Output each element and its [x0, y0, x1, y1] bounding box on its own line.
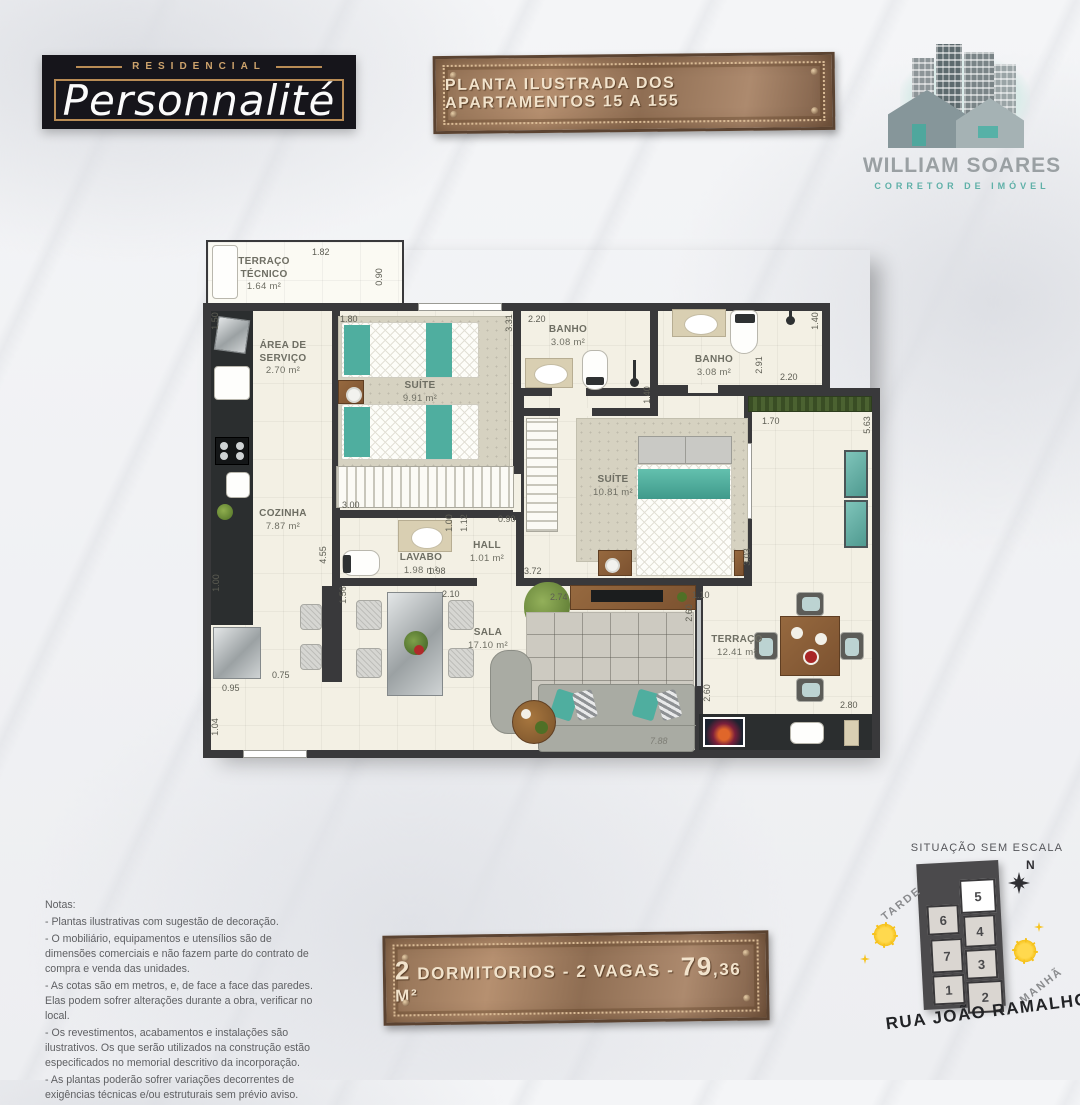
terrace-chair: [796, 592, 824, 616]
single-bed: [341, 322, 479, 378]
glass-panel: [844, 500, 868, 548]
dim-label: 2.20: [780, 372, 798, 382]
washing-machine: [214, 366, 250, 400]
plaque-screw: [402, 999, 409, 1006]
burner: [236, 452, 244, 460]
kitchen-sink: [226, 472, 250, 498]
plant-icon: [677, 592, 687, 602]
gold-line-right: [276, 66, 322, 68]
sink-basin: [684, 314, 718, 335]
wall-segment: [203, 303, 211, 758]
table-bowl: [521, 709, 531, 719]
bed-pillow: [344, 407, 370, 457]
dim-label: 2.60: [702, 684, 712, 702]
sparkle-icon: [1034, 922, 1044, 932]
planter-hedge: [748, 396, 872, 412]
unit-1: 1: [932, 974, 966, 1006]
brand-name: WILLIAM SOARES: [856, 154, 1068, 178]
brand-tagline: CORRETOR DE IMÓVEL: [856, 181, 1068, 191]
wall-segment: [332, 578, 477, 586]
tarde-label: TARDE: [879, 885, 923, 923]
room-label: SUÍTE10.81 m²: [582, 474, 644, 498]
dim-label: 1.50: [210, 312, 220, 330]
dim-label: 1.10: [692, 590, 710, 600]
toilet: [342, 550, 380, 576]
bed-blanket: [638, 469, 730, 499]
toilet: [582, 350, 608, 390]
wall-segment: [332, 510, 521, 518]
house-door: [912, 124, 926, 146]
dim-label: 1.12: [459, 514, 469, 532]
note-line: - As cotas são em metros, e, de face a f…: [45, 979, 317, 1024]
dining-chair: [448, 648, 474, 678]
bathroom-counter: [672, 309, 726, 337]
room-label: SALA17.10 m²: [458, 627, 518, 651]
unit-7: 7: [930, 938, 964, 974]
bathroom-counter: [525, 358, 573, 388]
bar-stool: [300, 644, 322, 670]
double-bed: [636, 464, 732, 576]
plaque-screw: [450, 72, 457, 79]
room-label: COZINHA7.87 m²: [252, 508, 314, 532]
dim-label: 1.56: [338, 586, 348, 604]
bed-pillow: [344, 325, 370, 375]
note-line: - As plantas poderão sofrer variações de…: [45, 1073, 317, 1103]
dim-label: 1.98: [428, 566, 446, 576]
dining-chair: [356, 648, 382, 678]
door-opening: [560, 408, 592, 416]
dim-label: 1.00: [444, 514, 454, 532]
note-line: - Os revestimentos, acabamentos e instal…: [45, 1026, 317, 1071]
room-label: HALL1.01 m²: [462, 540, 512, 564]
wardrobe: [526, 418, 558, 532]
room-label: BANHO3.08 m²: [538, 324, 598, 348]
william-soares-logo-mark: [882, 42, 1042, 150]
unit-5: 5: [959, 878, 997, 914]
burner: [220, 452, 228, 460]
unit-6: 6: [926, 904, 960, 936]
summary-plaque: 2 DORMITORIOS - 2 VAGAS - 79,36 M²: [382, 930, 769, 1025]
north-label: N: [1026, 858, 1035, 872]
refrigerator: [213, 627, 261, 679]
wardrobe: [336, 466, 514, 508]
wall-segment: [744, 388, 880, 396]
tv-sideboard: [570, 585, 696, 610]
room-label: ÁREA DE SERVIÇO2.70 m²: [253, 340, 313, 377]
room-label: BANHO3.08 m²: [684, 354, 744, 378]
lamp-icon: [605, 558, 620, 573]
burner: [236, 442, 244, 450]
room-label: SUÍTE9.91 m²: [390, 380, 450, 404]
dim-label: 1.04: [210, 718, 220, 736]
barbecue-fire-window: [703, 717, 745, 747]
unit-4: 4: [963, 914, 997, 948]
dining-chair: [356, 600, 382, 630]
bed-runner: [426, 405, 452, 459]
lamp-icon: [346, 387, 362, 403]
summary-plaque-inner: 2 DORMITORIOS - 2 VAGAS - 79,36 M²: [393, 939, 760, 1016]
table-plant: [535, 721, 548, 734]
plaque-screw: [743, 950, 750, 957]
dim-label: 2.74: [550, 592, 568, 602]
sun-icon: [872, 922, 898, 948]
top-plaque-text: PLANTA ILUSTRADA DOS APARTAMENTOS 15 A 1…: [445, 73, 823, 113]
dim-label: 1.70: [762, 416, 780, 426]
headboard: [638, 436, 732, 464]
chair-seat: [802, 597, 820, 611]
dining-chair: [448, 600, 474, 630]
plate: [815, 633, 827, 645]
dim-label: 1.40: [810, 312, 820, 330]
logo-personnalite-text: Personnalité: [42, 79, 356, 121]
dim-label: 4.55: [318, 546, 328, 564]
summary-text: 2 DORMITORIOS - 2 VAGAS - 79,36 M²: [395, 950, 758, 1006]
wall-segment: [332, 510, 340, 586]
sparkle-icon: [860, 954, 870, 964]
dim-label: 1.40: [642, 386, 652, 404]
bed-runner: [426, 323, 452, 377]
note-line: - O mobiliário, equipamentos e utensílio…: [45, 932, 317, 977]
dim-label: 0.90: [498, 514, 516, 524]
room-label: TERRAÇO TÉCNICO1.64 m²: [225, 256, 303, 293]
dining-table: [387, 592, 443, 696]
logo-residencial-row: RESIDENCIAL: [42, 61, 356, 72]
nightstand: [598, 550, 632, 576]
glass-panel: [844, 450, 868, 498]
william-soares-logo: WILLIAM SOARES CORRETOR DE IMÓVEL: [856, 42, 1068, 191]
bowl: [803, 649, 819, 665]
toilet: [730, 310, 758, 354]
door-opening: [688, 385, 718, 393]
terrace-chair: [840, 632, 864, 660]
notes-title: Notas:: [45, 898, 317, 913]
terrace-table: [780, 616, 840, 676]
bar-stool: [300, 604, 322, 630]
window: [243, 750, 307, 758]
coffee-table: [512, 700, 556, 744]
chair-seat: [845, 638, 859, 656]
plaque-screw: [450, 111, 457, 118]
dim-label: 1.80: [340, 314, 358, 324]
door-opening: [552, 388, 586, 396]
throw-pillow: [656, 689, 683, 721]
plant-icon: [217, 504, 233, 520]
toilet-tank: [343, 555, 351, 573]
sofa: [538, 684, 695, 752]
sliding-glass-door: [697, 600, 701, 686]
tv: [591, 590, 663, 602]
stove: [215, 437, 249, 465]
wall-segment: [872, 388, 880, 758]
unit-3: 3: [965, 948, 999, 980]
room-label: TERRAÇO12.41 m²: [706, 634, 768, 658]
dim-label: 7.88: [650, 736, 668, 746]
notes-block: Notas: - Plantas ilustrativas com sugest…: [45, 898, 317, 1105]
single-bed: [341, 404, 479, 460]
grill-sink: [790, 722, 824, 744]
note-line: - Plantas ilustrativas com sugestão de d…: [45, 915, 317, 930]
dim-label: 1.00: [211, 574, 221, 592]
terrace-chair: [796, 678, 824, 702]
dim-label: 1.82: [312, 247, 330, 257]
plaque-screw: [743, 995, 750, 1002]
gold-line-left: [76, 66, 122, 68]
logo-residencial-text: RESIDENCIAL: [132, 61, 266, 72]
centerpiece-flowers: [414, 645, 424, 655]
dim-label: 0.75: [272, 670, 290, 680]
dim-label: 3.03: [742, 548, 752, 566]
sink-basin: [534, 364, 568, 385]
plaque-screw: [811, 107, 818, 114]
dim-label: 2.60: [684, 604, 694, 622]
plate: [791, 627, 803, 639]
cutting-board: [844, 720, 859, 746]
top-plaque-inner: PLANTA ILUSTRADA DOS APARTAMENTOS 15 A 1…: [443, 61, 826, 125]
nightstand: [338, 380, 364, 404]
door-opening: [513, 474, 521, 512]
dim-label: 2.91: [754, 356, 764, 374]
dim-label: 2.10: [442, 589, 460, 599]
throw-pillow: [572, 689, 598, 721]
situation-plot: 6 5 4 3 7 1 2: [916, 860, 1006, 1010]
chair-seat: [802, 683, 820, 697]
dim-label: 3.72: [524, 566, 542, 576]
plaque-screw: [811, 68, 818, 75]
burner: [220, 442, 228, 450]
situation-title: SITUAÇÃO SEM ESCALA: [892, 842, 1080, 854]
dim-label: 0.90: [374, 268, 384, 286]
residencial-personnalite-logo: RESIDENCIAL Personnalité: [42, 55, 356, 129]
top-title-plaque: PLANTA ILUSTRADA DOS APARTAMENTOS 15 A 1…: [433, 52, 836, 134]
dim-label: 3.31: [504, 314, 514, 332]
toilet-tank: [735, 314, 755, 323]
sink-basin: [411, 527, 443, 549]
plaque-screw: [402, 954, 409, 961]
window: [418, 303, 502, 311]
sofa-seam: [539, 725, 696, 726]
shower-arm: [789, 311, 792, 323]
dim-label: 3.00: [342, 500, 360, 510]
dim-label: 0.95: [222, 683, 240, 693]
headboard-divider: [685, 437, 686, 463]
dim-label: 5.63: [862, 416, 872, 434]
toilet-lid: [586, 377, 604, 385]
flyer-canvas: { "logo": { "top": "RESIDENCIAL", "name"…: [0, 0, 1080, 1080]
sun-icon: [1012, 938, 1038, 964]
shower-arm: [633, 360, 636, 380]
dim-label: 2.80: [840, 700, 858, 710]
house-window: [978, 126, 998, 138]
dim-label: 2.20: [528, 314, 546, 324]
wall-segment: [822, 303, 830, 393]
